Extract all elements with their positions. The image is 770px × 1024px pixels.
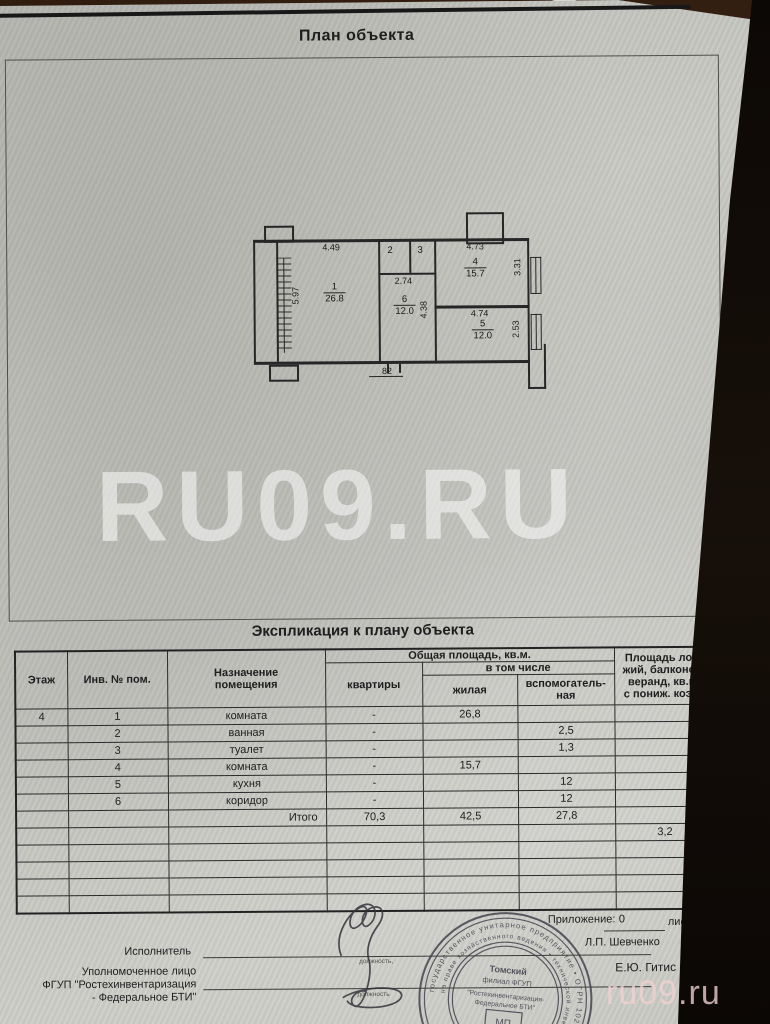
room-area: 12.0	[459, 330, 507, 341]
chimney-outline	[264, 226, 294, 243]
cell	[16, 862, 68, 879]
cell: -	[326, 791, 423, 809]
cell: Итого	[168, 809, 326, 827]
watermark-center: RU09.RU	[96, 447, 581, 565]
cell: 6	[68, 793, 168, 811]
wall	[409, 241, 411, 273]
cell	[517, 705, 614, 723]
wall	[531, 314, 532, 350]
cell	[168, 860, 326, 878]
cell	[68, 861, 168, 879]
cell	[519, 875, 616, 893]
room-area: 12.0	[383, 306, 427, 317]
cell: 2	[67, 725, 167, 743]
dim-label: 2.53	[511, 312, 521, 346]
cell: -	[326, 757, 423, 775]
cell	[423, 774, 518, 792]
cell	[327, 876, 424, 894]
wall	[435, 305, 530, 309]
room-number: 3	[417, 245, 422, 256]
col-purpose: Назначение помещения	[167, 649, 325, 708]
cell: -	[325, 723, 422, 741]
cell	[68, 844, 168, 862]
cell	[168, 826, 326, 844]
dim-label: 4.74	[455, 308, 505, 318]
room-number: 6	[394, 294, 415, 306]
table-header: Этаж Инв. № пом. Назначение помещения Об…	[15, 647, 714, 709]
cell	[16, 794, 68, 811]
cell	[423, 825, 518, 843]
explication-table: Этаж Инв. № пом. Назначение помещения Об…	[14, 646, 717, 915]
cell: 5	[68, 776, 168, 794]
wall	[378, 273, 436, 275]
cell	[518, 841, 615, 859]
cell	[423, 842, 518, 860]
dim-label: 4.49	[306, 242, 356, 252]
authorized-name: Е.Ю. Гитис	[615, 960, 676, 974]
room-label: 1 26.8	[310, 281, 358, 304]
dim-label: 3.31	[512, 250, 522, 284]
explication-title: Экспликация к плану объекта	[1, 620, 725, 642]
cell: 1,3	[518, 739, 615, 757]
cell	[16, 777, 68, 794]
wall	[434, 241, 437, 363]
wall	[253, 240, 256, 364]
cell	[169, 894, 327, 913]
cell	[326, 842, 423, 860]
cell	[423, 859, 518, 877]
chimney-outline	[466, 212, 504, 244]
col-including: в том числе	[422, 661, 614, 675]
stamp-mp: МП	[495, 1017, 512, 1024]
col-inv: Инв. № пом.	[67, 651, 167, 709]
cell: 4	[15, 709, 67, 726]
appendix-underline	[604, 930, 665, 932]
col-flat: квартиры	[325, 662, 422, 707]
executor-label: Исполнитель	[23, 945, 191, 958]
cell	[326, 825, 423, 843]
wall	[530, 257, 541, 258]
room-number: 2	[387, 245, 392, 256]
chimney-outline	[269, 365, 299, 382]
room-number: 1	[324, 281, 345, 293]
official-stamp: государственное унитарное предприятие • …	[401, 900, 610, 1024]
cell: 12	[518, 773, 615, 791]
wall	[399, 364, 401, 373]
photographed-document: План объекта 4.49 2.74 4.73 4.74 82 5.97…	[0, 0, 770, 1024]
table-body: 41комната-26,82ванная-2,53туалет-1,34ком…	[15, 704, 715, 913]
cell: 27,8	[518, 807, 615, 825]
cell: комната	[168, 758, 326, 776]
cell	[518, 756, 615, 774]
cell: 4	[68, 759, 168, 777]
room-label: 4 15.7	[451, 256, 499, 279]
authorized-label: Уполномоченное лицо ФГУП "Ростехинвентар…	[23, 965, 196, 1005]
watermark-corner: ru09.ru	[606, 974, 721, 1013]
cell	[422, 723, 517, 741]
room-label: 5 12.0	[459, 318, 507, 341]
wall	[544, 344, 546, 389]
wall	[541, 314, 542, 350]
cell: 70,3	[326, 808, 423, 826]
wall	[530, 257, 531, 294]
room-label: 6 12.0	[382, 294, 426, 317]
cell	[423, 740, 518, 758]
room-number: 4	[465, 256, 486, 268]
room-area: 15.7	[451, 268, 499, 279]
wall	[535, 257, 536, 294]
cell	[424, 876, 519, 894]
wall	[378, 241, 381, 363]
cell: 26,8	[422, 706, 517, 724]
cell	[168, 843, 326, 861]
wall	[536, 314, 537, 350]
cell	[15, 726, 67, 743]
cell	[518, 858, 615, 876]
appendix-value: 0	[619, 913, 625, 925]
cell: комната	[167, 707, 325, 725]
cell: 1	[67, 708, 167, 726]
cell	[16, 811, 68, 828]
room-number: 5	[472, 318, 493, 330]
floor-plan: 4.49 2.74 4.73 4.74 82 5.97 4.38 3.31 2.…	[248, 204, 569, 406]
wall	[531, 314, 542, 315]
cell: 42,5	[423, 808, 518, 826]
cell	[423, 791, 518, 809]
cell	[17, 896, 69, 914]
wall	[530, 293, 541, 294]
cell	[16, 743, 68, 760]
dim-label: 2.74	[381, 276, 425, 286]
cell: кухня	[168, 775, 326, 793]
document-content: План объекта 4.49 2.74 4.73 4.74 82 5.97…	[0, 0, 770, 1024]
page-title: План объекта	[0, 25, 717, 48]
cell: туалет	[168, 741, 326, 759]
cell: -	[326, 740, 423, 758]
cell	[68, 810, 168, 828]
room-label: 3	[410, 245, 430, 256]
cell: 3	[68, 742, 168, 760]
cell	[69, 878, 169, 896]
col-living: жилая	[422, 675, 517, 707]
cell	[16, 845, 68, 862]
cell: ванная	[167, 724, 325, 742]
cell: -	[326, 774, 423, 792]
cell	[518, 824, 615, 842]
cell	[16, 760, 68, 777]
cell	[69, 895, 169, 913]
top-border-line	[0, 5, 690, 18]
wall	[540, 257, 541, 294]
col-floor: Этаж	[15, 651, 67, 709]
cell	[17, 879, 69, 896]
cell	[68, 827, 168, 845]
room-label: 2	[380, 245, 400, 256]
cell: коридор	[168, 792, 326, 810]
cell: 12	[518, 790, 615, 808]
col-aux: вспомогатель- ная	[517, 674, 614, 706]
room-area: 26.8	[310, 293, 358, 304]
cell	[169, 877, 327, 895]
cell: 2,5	[517, 722, 614, 740]
cell: -	[325, 706, 422, 724]
cell: 15,7	[423, 757, 518, 775]
wall	[369, 376, 403, 377]
cell	[16, 828, 68, 845]
cell	[326, 859, 423, 877]
wall	[387, 364, 389, 373]
wall	[531, 349, 542, 350]
wall	[528, 387, 546, 389]
dim-label: 5.97	[290, 279, 300, 313]
